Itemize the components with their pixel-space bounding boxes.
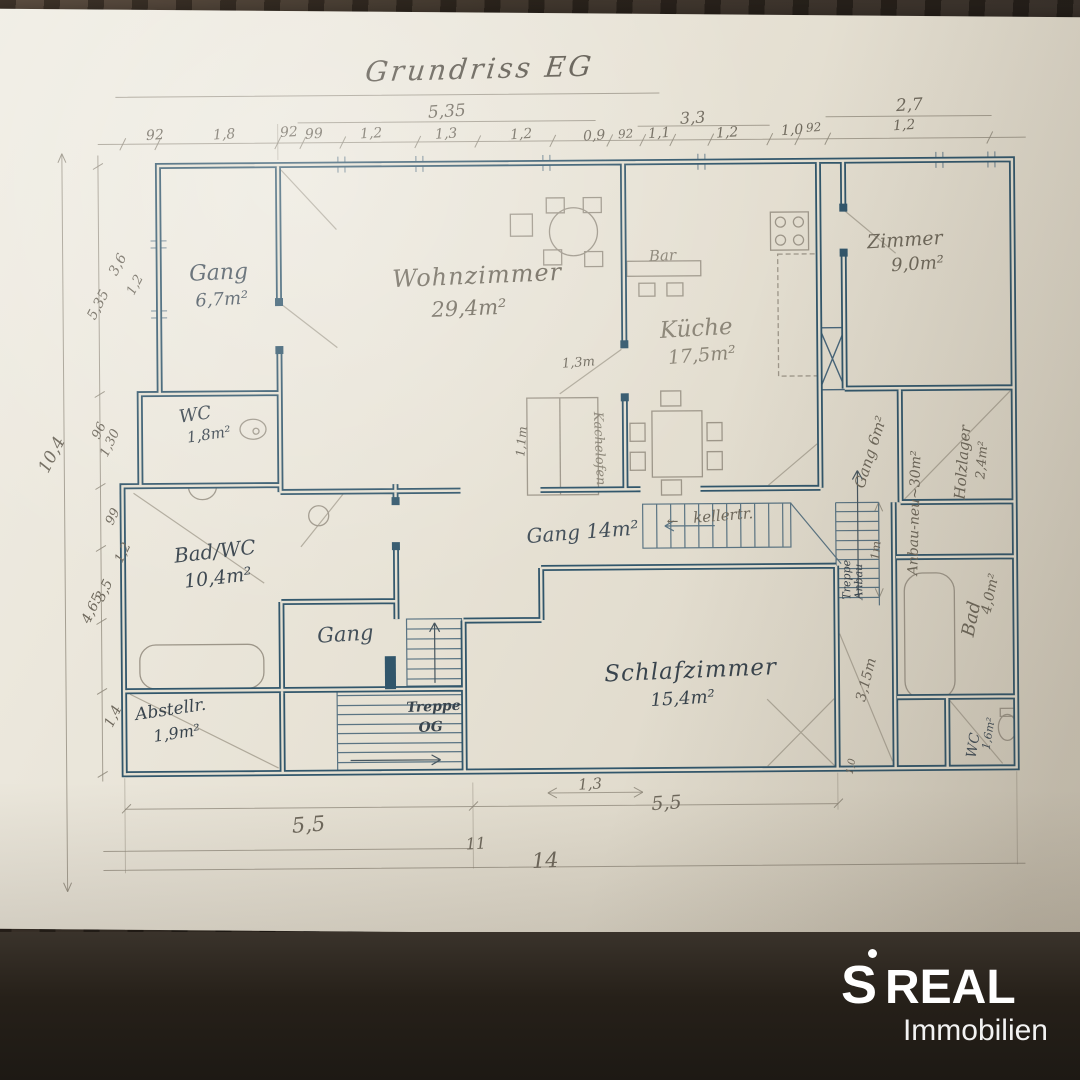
dim-top-16: 2,7 xyxy=(895,97,923,116)
dim-top-9: 0,9 xyxy=(583,128,606,144)
dim-top-13: 1,2 xyxy=(716,125,739,141)
room-label-anbau: Anbau-neu~30m² xyxy=(906,450,924,575)
dim-inner-2: 1,1m xyxy=(514,426,529,457)
photo-of-floorplan: Grundriss EG Gang 6,7m² Wohnzimmer 29,4m… xyxy=(0,0,1080,1080)
dim-top-11: 1,1 xyxy=(648,126,671,142)
room-area-schlafzimmer: 15,4m² xyxy=(650,688,715,711)
plan-title: Grundriss EG xyxy=(364,52,596,87)
treppe-anbau-line2: Anbau xyxy=(853,560,865,600)
dim-top-1: 92 xyxy=(146,128,165,144)
stairs-mid-landing xyxy=(407,619,463,686)
sreal-logo: S REAL Immobilien xyxy=(841,958,1048,1046)
room-label-kueche: Küche xyxy=(659,315,733,343)
dim-bottom-4: 11 xyxy=(465,835,486,853)
room-label-treppe-og-2: OG xyxy=(418,720,443,736)
furniture xyxy=(136,194,1016,747)
room-area-wohnzimmer: 29,4m² xyxy=(431,296,507,321)
room-label-kachelofen: Kachelofen xyxy=(590,411,607,485)
floorplan-drawing: Grundriss EG Gang 6,7m² Wohnzimmer 29,4m… xyxy=(0,0,1080,1080)
room-label-bar: Bar xyxy=(649,248,677,265)
dim-bottom-2: 1,3 xyxy=(578,776,603,793)
dim-top-15: 92 xyxy=(806,121,822,134)
table-background: S REAL Immobilien xyxy=(0,932,1080,1080)
pillar xyxy=(274,204,851,690)
room-area-holzlager: 2,4m² xyxy=(974,440,991,479)
room-label-treppe-og-1: Treppe xyxy=(406,699,461,716)
dim-top-14: 1,0 xyxy=(781,123,804,139)
room-area-zimmer: 9,0m² xyxy=(891,254,945,276)
paper-sheet: Grundriss EG Gang 6,7m² Wohnzimmer 29,4m… xyxy=(0,9,1080,938)
dim-top-10: 92 xyxy=(618,127,634,140)
dim-inner-1: 1,3m xyxy=(561,355,595,371)
dim-top-5: 1,2 xyxy=(360,126,383,142)
dim-bottom-3: 5,5 xyxy=(651,793,682,815)
sreal-subtitle: Immobilien xyxy=(903,1016,1048,1046)
room-area-gang-eg: 6,7m² xyxy=(195,290,249,312)
room-label-gang-eg: Gang xyxy=(189,260,249,286)
dim-top-4: 99 xyxy=(305,127,324,143)
dim-top-7: 1,3 xyxy=(435,126,458,142)
dim-top-2: 1,8 xyxy=(213,127,236,143)
dim-bottom-1: 5,5 xyxy=(291,812,326,837)
sreal-brand-text: REAL xyxy=(885,964,1016,1012)
dim-inner-3: 1m xyxy=(869,540,883,560)
dim-top-12: 3,3 xyxy=(680,109,706,127)
room-label-treppe-anbau: Treppe Anbau xyxy=(841,560,864,600)
room-label-gang-unten: Gang xyxy=(317,621,374,646)
dim-top-6: 5,35 xyxy=(427,103,466,123)
dim-top-8: 1,2 xyxy=(510,127,533,143)
kellertr-arrow: ← xyxy=(667,515,679,530)
dim-bottom-5: 14 xyxy=(531,849,559,872)
dim-top-17: 1,2 xyxy=(893,118,916,134)
dim-top-3: 92 xyxy=(280,125,299,141)
sreal-s-icon: S xyxy=(841,958,875,1012)
